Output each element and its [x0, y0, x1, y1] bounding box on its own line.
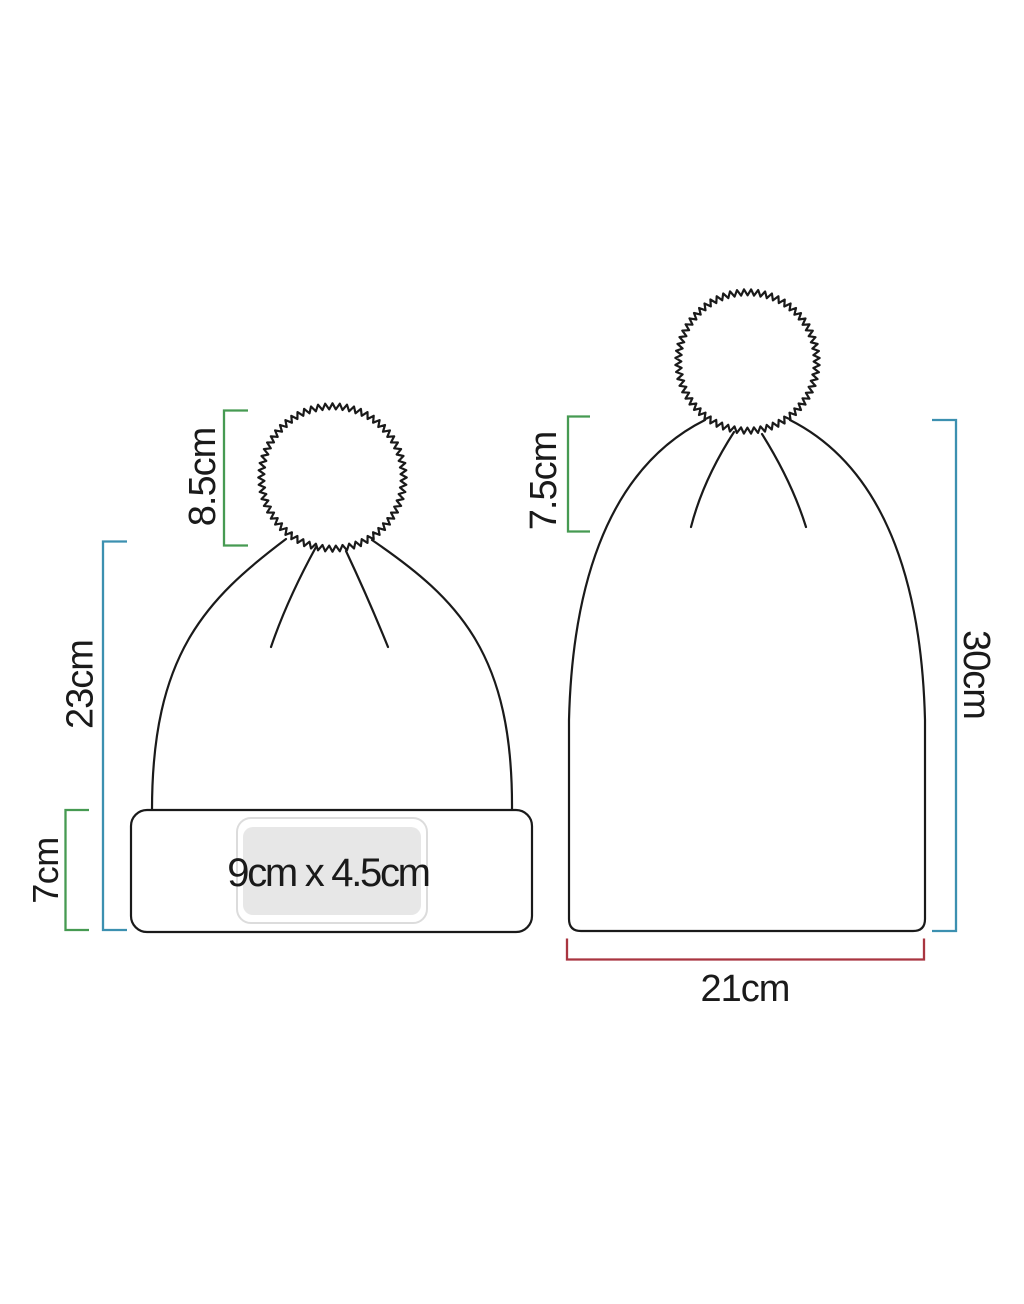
svg-text:7.5cm: 7.5cm — [523, 432, 565, 530]
svg-text:30cm: 30cm — [955, 630, 997, 719]
svg-text:23cm: 23cm — [60, 640, 102, 729]
svg-text:7cm: 7cm — [25, 837, 66, 904]
svg-text:9cm x 4.5cm: 9cm x 4.5cm — [227, 851, 428, 895]
svg-text:8.5cm: 8.5cm — [182, 428, 224, 526]
svg-text:21cm: 21cm — [701, 968, 790, 1010]
